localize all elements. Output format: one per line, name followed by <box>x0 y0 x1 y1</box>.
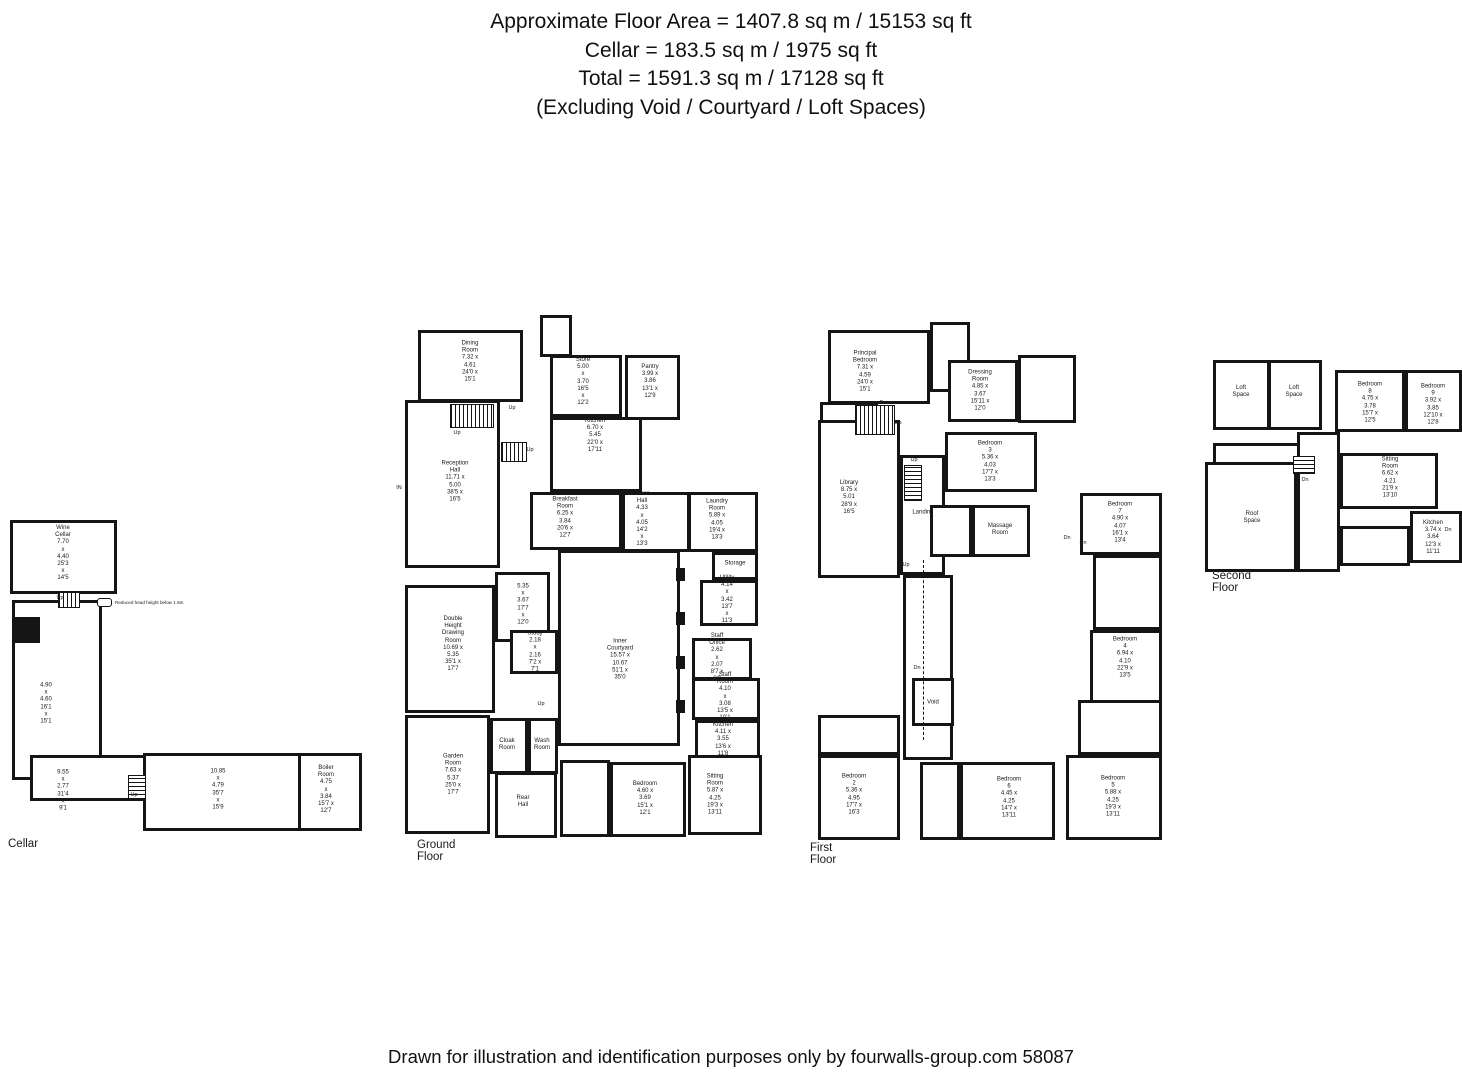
room-label-bedroom-8: Bedroom 8 4.75 x 3.78 15'7 x 12'5 <box>1358 381 1382 424</box>
room-label: 5.35 x 3.67 17'7 x 12'0 <box>517 583 529 626</box>
room-outline <box>1340 526 1410 566</box>
room-label-breakfast-room: Breakfast Room 6.25 x 3.84 20'6 x 12'7 <box>552 496 577 539</box>
room-label-staff-room: Staff Room 4.10 x 3.08 13'5 x 10'1 <box>717 672 733 722</box>
room-label-boiler-room: Boiler Room 4.75 x 3.84 15'7 x 12'7 <box>318 765 334 815</box>
annotation-dn: Dn <box>1444 527 1451 533</box>
annotation-up: Up <box>894 420 901 426</box>
annotation-in: IN <box>396 485 402 491</box>
room-label-dressing-room: Dressing Room 4.85 x 3.67 15'11 x 12'0 <box>968 369 992 412</box>
room-outline <box>930 505 972 557</box>
room-label-bedroom-7: Bedroom 7 4.90 x 4.07 16'1 x 13'4 <box>1108 501 1132 544</box>
stairs-icon <box>501 442 527 462</box>
annotation-up: Up <box>56 595 63 601</box>
room-outline <box>920 762 960 840</box>
room-label-principal-bedroom: Principal Bedroom 7.31 x 4.59 24'0 x 15'… <box>853 350 877 393</box>
room-label-cloak-room: Cloak Room <box>499 738 515 752</box>
annotation-dn: Dn <box>879 400 886 406</box>
room-label-wine-cellar: Wine Cellar 7.70 x 4.40 25'3 x 14'5 <box>55 525 71 583</box>
corridor-dashed-line <box>923 560 924 740</box>
room-outline <box>1093 555 1162 630</box>
annotation-dn: Dn <box>1301 477 1308 483</box>
room-label-bedroom-6: Bedroom 6 4.45 x 4.25 14'7 x 13'11 <box>997 776 1021 819</box>
wall-fill <box>676 568 685 581</box>
annotation-up: Up <box>130 792 137 798</box>
room-outline-inner-hall <box>622 492 690 552</box>
room-label-bedroom: Bedroom 4.60 x 3.69 15'1 x 12'1 <box>633 781 657 817</box>
room-label-bedroom-3: Bedroom 3 5.36 x 4.03 17'7 x 13'3 <box>978 440 1002 483</box>
wall-fill <box>676 656 685 669</box>
stairs-icon <box>904 465 922 501</box>
room-label: 4.90 x 4.60 16'1 x 15'1 <box>40 682 52 725</box>
area-summary: Approximate Floor Area = 1407.8 sq m / 1… <box>0 8 1462 122</box>
annotation-dn: Dn <box>913 665 920 671</box>
room-label-sitting-room: Sitting Room 5.87 x 4.25 19'3 x 13'11 <box>707 773 724 816</box>
room-label-rear-hall: Rear Hall <box>516 795 529 809</box>
room-label: 10.85 x 4.79 35'7 x 15'9 <box>210 768 225 811</box>
stairs-icon <box>450 404 494 428</box>
room-label-library: Library 8.75 x 5.01 28'9 x 16'5 <box>840 480 858 516</box>
room-label-utility: Utility 4.14 x 3.42 13'7 x 11'3 <box>720 575 735 625</box>
room-label-sitting-room: Sitting Room 6.62 x 4.21 21'9 x 13'10 <box>1382 456 1399 499</box>
legend-swatch-icon <box>97 598 112 607</box>
room-outline <box>818 715 900 755</box>
annotation-up: Up <box>453 430 460 436</box>
wall-fill <box>12 617 40 643</box>
area-summary-line-1: Approximate Floor Area = 1407.8 sq m / 1… <box>0 8 1462 37</box>
attribution-text: Drawn for illustration and identificatio… <box>0 1046 1462 1068</box>
room-label-loft-space: Loft Space <box>1232 385 1249 399</box>
annotation-up: Up <box>526 447 533 453</box>
annotation-up: Up <box>537 701 544 707</box>
room-label-inner-hall: Inner Hall 4.33 x 4.05 14'2 x 13'3 <box>635 491 649 549</box>
floorplan-page: Approximate Floor Area = 1407.8 sq m / 1… <box>0 0 1462 1080</box>
floor-label-first-floor: First Floor <box>810 842 836 866</box>
room-outline <box>540 315 572 357</box>
wall-fill <box>676 612 685 625</box>
legend-label: Reduced head height below 1.5m <box>115 600 183 605</box>
room-label-bedroom-5: Bedroom 5 5.88 x 4.25 19'3 x 13'11 <box>1101 775 1125 818</box>
wall-fill <box>676 700 685 713</box>
floor-label-cellar: Cellar <box>8 838 38 850</box>
room-label-laundry-room: Laundry Room 5.89 x 4.05 19'4 x 13'3 <box>706 498 728 541</box>
area-summary-line-3: Total = 1591.3 sq m / 17128 sq ft <box>0 65 1462 94</box>
room-label-kitchen: Kitchen 6.70 x 5.45 22'0 x 17'11 <box>585 418 605 454</box>
room-label-kitchen: Kitchen 4.11 x 3.55 13'6 x 11'8 <box>713 722 733 758</box>
stairs-icon <box>1293 456 1315 474</box>
room-outline <box>1018 355 1076 423</box>
room-outline <box>560 760 610 837</box>
annotation-dn: Dn <box>1079 540 1086 546</box>
room-outline-principal-bedroom <box>828 330 930 404</box>
room-label-garden-room: Garden Room 7.63 x 5.37 25'0 x 17'7 <box>443 753 463 796</box>
room-label-massage-room: Massage Room <box>988 523 1012 537</box>
room-label-study: Study 2.18 x 2.16 7'2 x 7'1 <box>527 630 542 673</box>
annotation-up: Up <box>902 562 909 568</box>
room-label-void: Void <box>927 699 939 706</box>
room-label-inner-courtyard: Inner Courtyard 15.57 x 10.67 51'1 x 35'… <box>607 638 633 681</box>
room-label-storage: Storage <box>724 560 745 567</box>
room-label-wash-room: Wash Room <box>534 738 550 752</box>
room-label-bedroom-2: Bedroom 2 5.36 x 4.95 17'7 x 16'3 <box>842 773 866 816</box>
stairs-icon <box>855 405 895 435</box>
area-summary-line-2: Cellar = 183.5 sq m / 1975 sq ft <box>0 37 1462 66</box>
annotation-up: Up <box>910 457 917 463</box>
room-label-bedroom-9: Bedroom 9 3.92 x 3.85 12'10 x 12'8 <box>1421 383 1445 426</box>
reduced-head-height-legend: Reduced head height below 1.5m <box>97 598 183 607</box>
room-outline-library <box>818 420 900 578</box>
annotation-dn: Dn <box>1063 535 1070 541</box>
room-outline <box>1297 432 1340 572</box>
room-label-reception-hall: Reception Hall 11.71 x 5.00 38'5 x 16'5 <box>441 460 468 503</box>
room-outline <box>903 575 953 760</box>
floor-label-second-floor: Second Floor <box>1212 570 1251 594</box>
room-label: 9.55 x 2.77 31'4 x 9'1 <box>57 769 69 812</box>
room-outline <box>1078 700 1162 755</box>
room-label-pantry: Pantry 3.99 x 3.86 13'1 x 12'9 <box>641 364 658 400</box>
room-label-dining-room: Dining Room 7.32 x 4.61 24'0 x 15'1 <box>461 340 478 383</box>
room-label-store: Store 5.00 x 3.70 16'5 x 12'2 <box>576 357 590 407</box>
annotation-up: Up <box>508 405 515 411</box>
room-label-double-height-drawing-room: Double Height Drawing Room 10.69 x 5.35 … <box>442 616 464 674</box>
area-summary-line-4: (Excluding Void / Courtyard / Loft Space… <box>0 94 1462 123</box>
floor-label-ground-floor: Ground Floor <box>417 839 455 863</box>
room-label-bedroom-4: Bedroom 4 6.94 x 4.10 22'9 x 13'5 <box>1113 636 1137 679</box>
room-label-roof-space: Roof Space <box>1243 511 1260 525</box>
room-label-loft-space: Loft Space <box>1285 385 1302 399</box>
room-outline-sitting-room <box>688 755 762 835</box>
room-label-kitchen: Kitchen 3.74 x 3.64 12'3 x 11'11 <box>1423 520 1443 556</box>
